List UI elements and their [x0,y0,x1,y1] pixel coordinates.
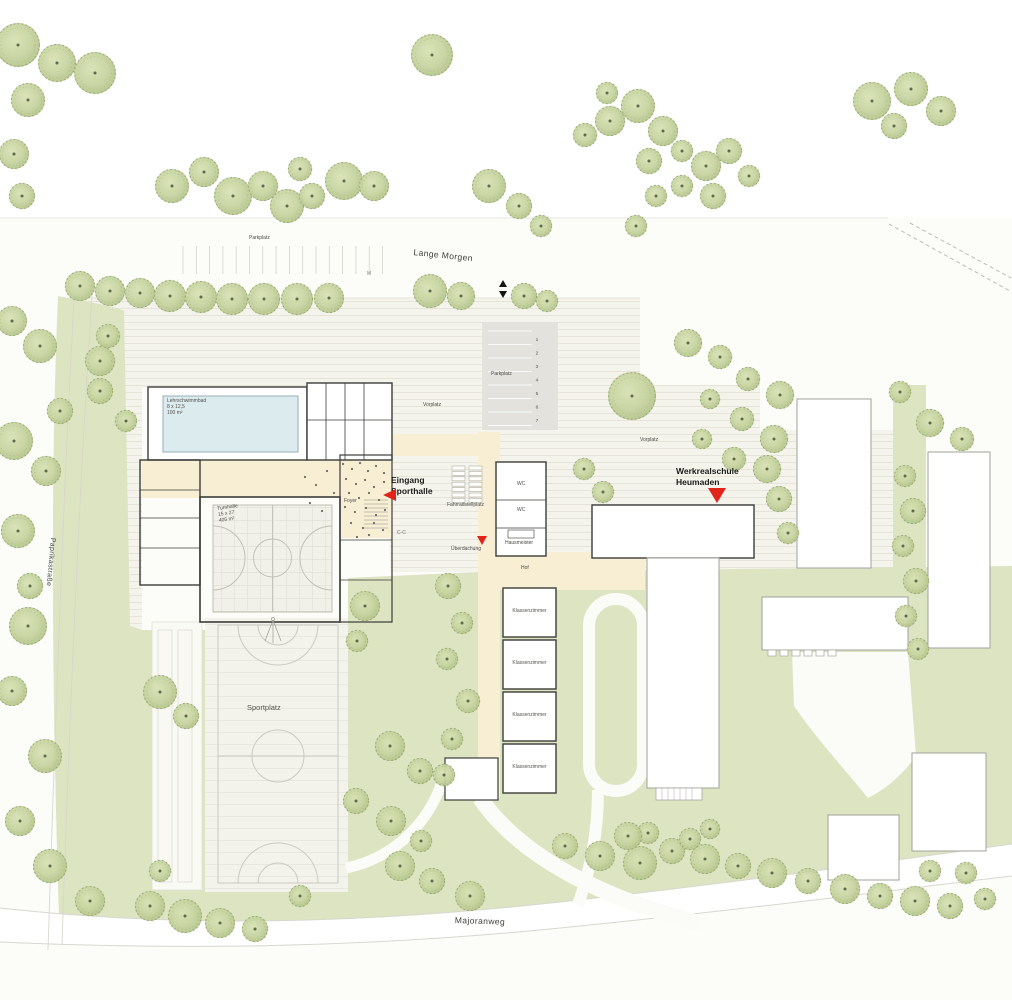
school-name-line2: Heumaden [676,477,739,488]
tree [645,185,667,207]
tree [189,157,219,187]
tree [9,183,35,209]
tree [350,591,380,621]
tree [299,183,325,209]
forecourt-east-label: Vorplatz [640,438,658,444]
sportplatz-field [152,618,348,892]
existing-building-2 [928,452,990,648]
tree [325,162,363,200]
school-name-line1: Werkrealschule [676,466,739,477]
gym-hall-label: Turnhalle 15 x 27 405 m² [217,504,240,524]
street-label-majoranweg: Majoranweg [455,916,506,928]
classroom-label-2: Klassenzimmer [506,660,553,666]
tree [625,215,647,237]
tree [892,535,914,557]
existing-building-5 [828,815,899,880]
tree [506,193,532,219]
tree [433,764,455,786]
tree [314,283,344,313]
tree [47,398,73,424]
tree [725,853,751,879]
pool-label: Lehrschwimmbad 8 x 12,5 100 m² [167,399,206,416]
tree [907,638,929,660]
tree [17,573,43,599]
tree [853,82,891,120]
tree [511,283,537,309]
tree [155,169,189,203]
street-direction-down-icon [499,291,507,298]
tree [708,345,732,369]
canopy-arrow-icon [477,536,487,545]
tree [346,630,368,652]
tree [216,283,248,315]
changing-rooms-block [307,383,392,460]
tree [31,456,61,486]
forecourt-west-label: Vorplatz [423,403,441,409]
parking-top-label: Parkplatz [249,236,270,242]
tree [28,739,62,773]
tree [536,290,558,312]
tree [595,106,625,136]
tree [154,280,186,312]
classroom-label-1: Klassenzimmer [506,608,553,614]
tree [9,607,47,645]
tree [242,916,268,942]
tree [530,215,552,237]
tree [937,893,963,919]
tree [33,849,67,883]
tree [736,367,760,391]
parking-stall-number: 5 [536,391,539,397]
tree [894,465,916,487]
tree [955,862,977,884]
tree [451,612,473,634]
parking-stall-number: 7 [536,418,539,424]
classroom-label-3: Klassenzimmer [506,712,553,718]
existing-building-3 [762,597,908,650]
tree [65,271,95,301]
tree [919,860,941,882]
tree [87,378,113,404]
tree [96,324,120,348]
tree [205,908,235,938]
bike-parking-label: Fahrradstellplatz [447,503,484,509]
tree [738,165,760,187]
parking-school-label: Parkplatz [491,372,512,378]
tree [375,731,405,761]
tree [926,96,956,126]
tree [636,148,662,174]
parking-stall-number: 2 [536,351,539,357]
entrance-label-line2: Sporthalle [391,486,433,497]
site-plan: 1234567 [0,0,1012,1000]
tree [700,819,720,839]
tree [671,175,693,197]
tree [85,346,115,376]
tree [671,140,693,162]
tree [830,874,860,904]
tree [766,486,792,512]
tree [38,44,76,82]
tree [648,116,678,146]
tree [900,498,926,524]
tree [168,899,202,933]
tree [5,806,35,836]
parking-stall-number: 6 [536,405,539,411]
tree [674,329,702,357]
tree [343,788,369,814]
tree [135,891,165,921]
school-wing [647,558,719,788]
canopy-label: Überdachung [451,547,481,553]
tree [895,605,917,627]
tree [456,689,480,713]
tree [716,138,742,164]
school-main-building [592,505,754,558]
existing-building-4 [912,753,986,851]
tree [700,183,726,209]
tree [903,568,929,594]
tree [608,372,656,420]
entrance-label-line1: Eingang [391,475,433,486]
tree [867,883,893,909]
tree [455,881,485,911]
tree [552,833,578,859]
tree [410,830,432,852]
tree [881,113,907,139]
tree [974,888,996,910]
tree [359,171,389,201]
tree [143,675,177,709]
entrance-label: Eingang Sporthalle [391,475,433,496]
tree [692,429,712,449]
tree [185,281,217,313]
tree [730,407,754,431]
school-arrow-icon [708,488,726,503]
tree [411,34,453,76]
caretaker-label: Hausmeister [505,541,533,547]
tree [0,139,29,169]
sportplatz-label: Sportplatz [247,704,281,713]
tree [385,851,415,881]
tree [281,283,313,315]
tree [435,573,461,599]
tree [900,886,930,916]
tree [270,189,304,223]
tree [950,427,974,451]
tree [573,123,597,147]
tree [757,858,787,888]
tree [441,728,463,750]
tree [23,329,57,363]
tree [592,481,614,503]
school-name-label: Werkrealschule Heumaden [676,466,739,487]
tree [248,283,280,315]
tree [777,522,799,544]
tree [376,806,406,836]
tree [75,886,105,916]
foyer-label: Foyer [344,499,357,505]
street-direction-up-icon [499,280,507,287]
tree [407,758,433,784]
parking-stall-number: 3 [536,364,539,370]
tree [413,274,447,308]
school-stairs [656,788,702,800]
tree [621,89,655,123]
tree [766,381,794,409]
tree [74,52,116,94]
tree [573,458,595,480]
tree [419,868,445,894]
tree [436,648,458,670]
section-mark-label: C-C [397,531,406,537]
tree [125,278,155,308]
tree [11,83,45,117]
classroom-label-4: Klassenzimmer [506,764,553,770]
tree [472,169,506,203]
tree [760,425,788,453]
wc-label-1: WC [517,482,525,488]
tree [916,409,944,437]
tree [289,885,311,907]
tree [753,455,781,483]
tree [596,82,618,104]
tree [447,282,475,310]
tree [691,151,721,181]
pool-label-line3: 100 m² [167,411,206,417]
tree [894,72,928,106]
tree [214,177,252,215]
tree [889,381,911,403]
tree [95,276,125,306]
tree [679,828,701,850]
courtyard-label: Hof [521,566,529,572]
tree [149,860,171,882]
tree [115,410,137,432]
tree [0,23,40,67]
tree [614,822,642,850]
wc-label-2: WC [517,508,525,514]
parking-stall-number: 1 [536,337,539,343]
existing-building-1 [797,399,871,568]
tree [795,868,821,894]
tree [288,157,312,181]
tree [623,846,657,880]
marker-m-label: M [367,272,371,278]
entrance-arrow-icon [383,489,396,501]
site-plan-graphics: 1234567 [0,0,1012,1000]
tree [1,514,35,548]
tree [585,841,615,871]
tree [173,703,199,729]
tree [700,389,720,409]
parking-stall-number: 4 [536,378,539,384]
